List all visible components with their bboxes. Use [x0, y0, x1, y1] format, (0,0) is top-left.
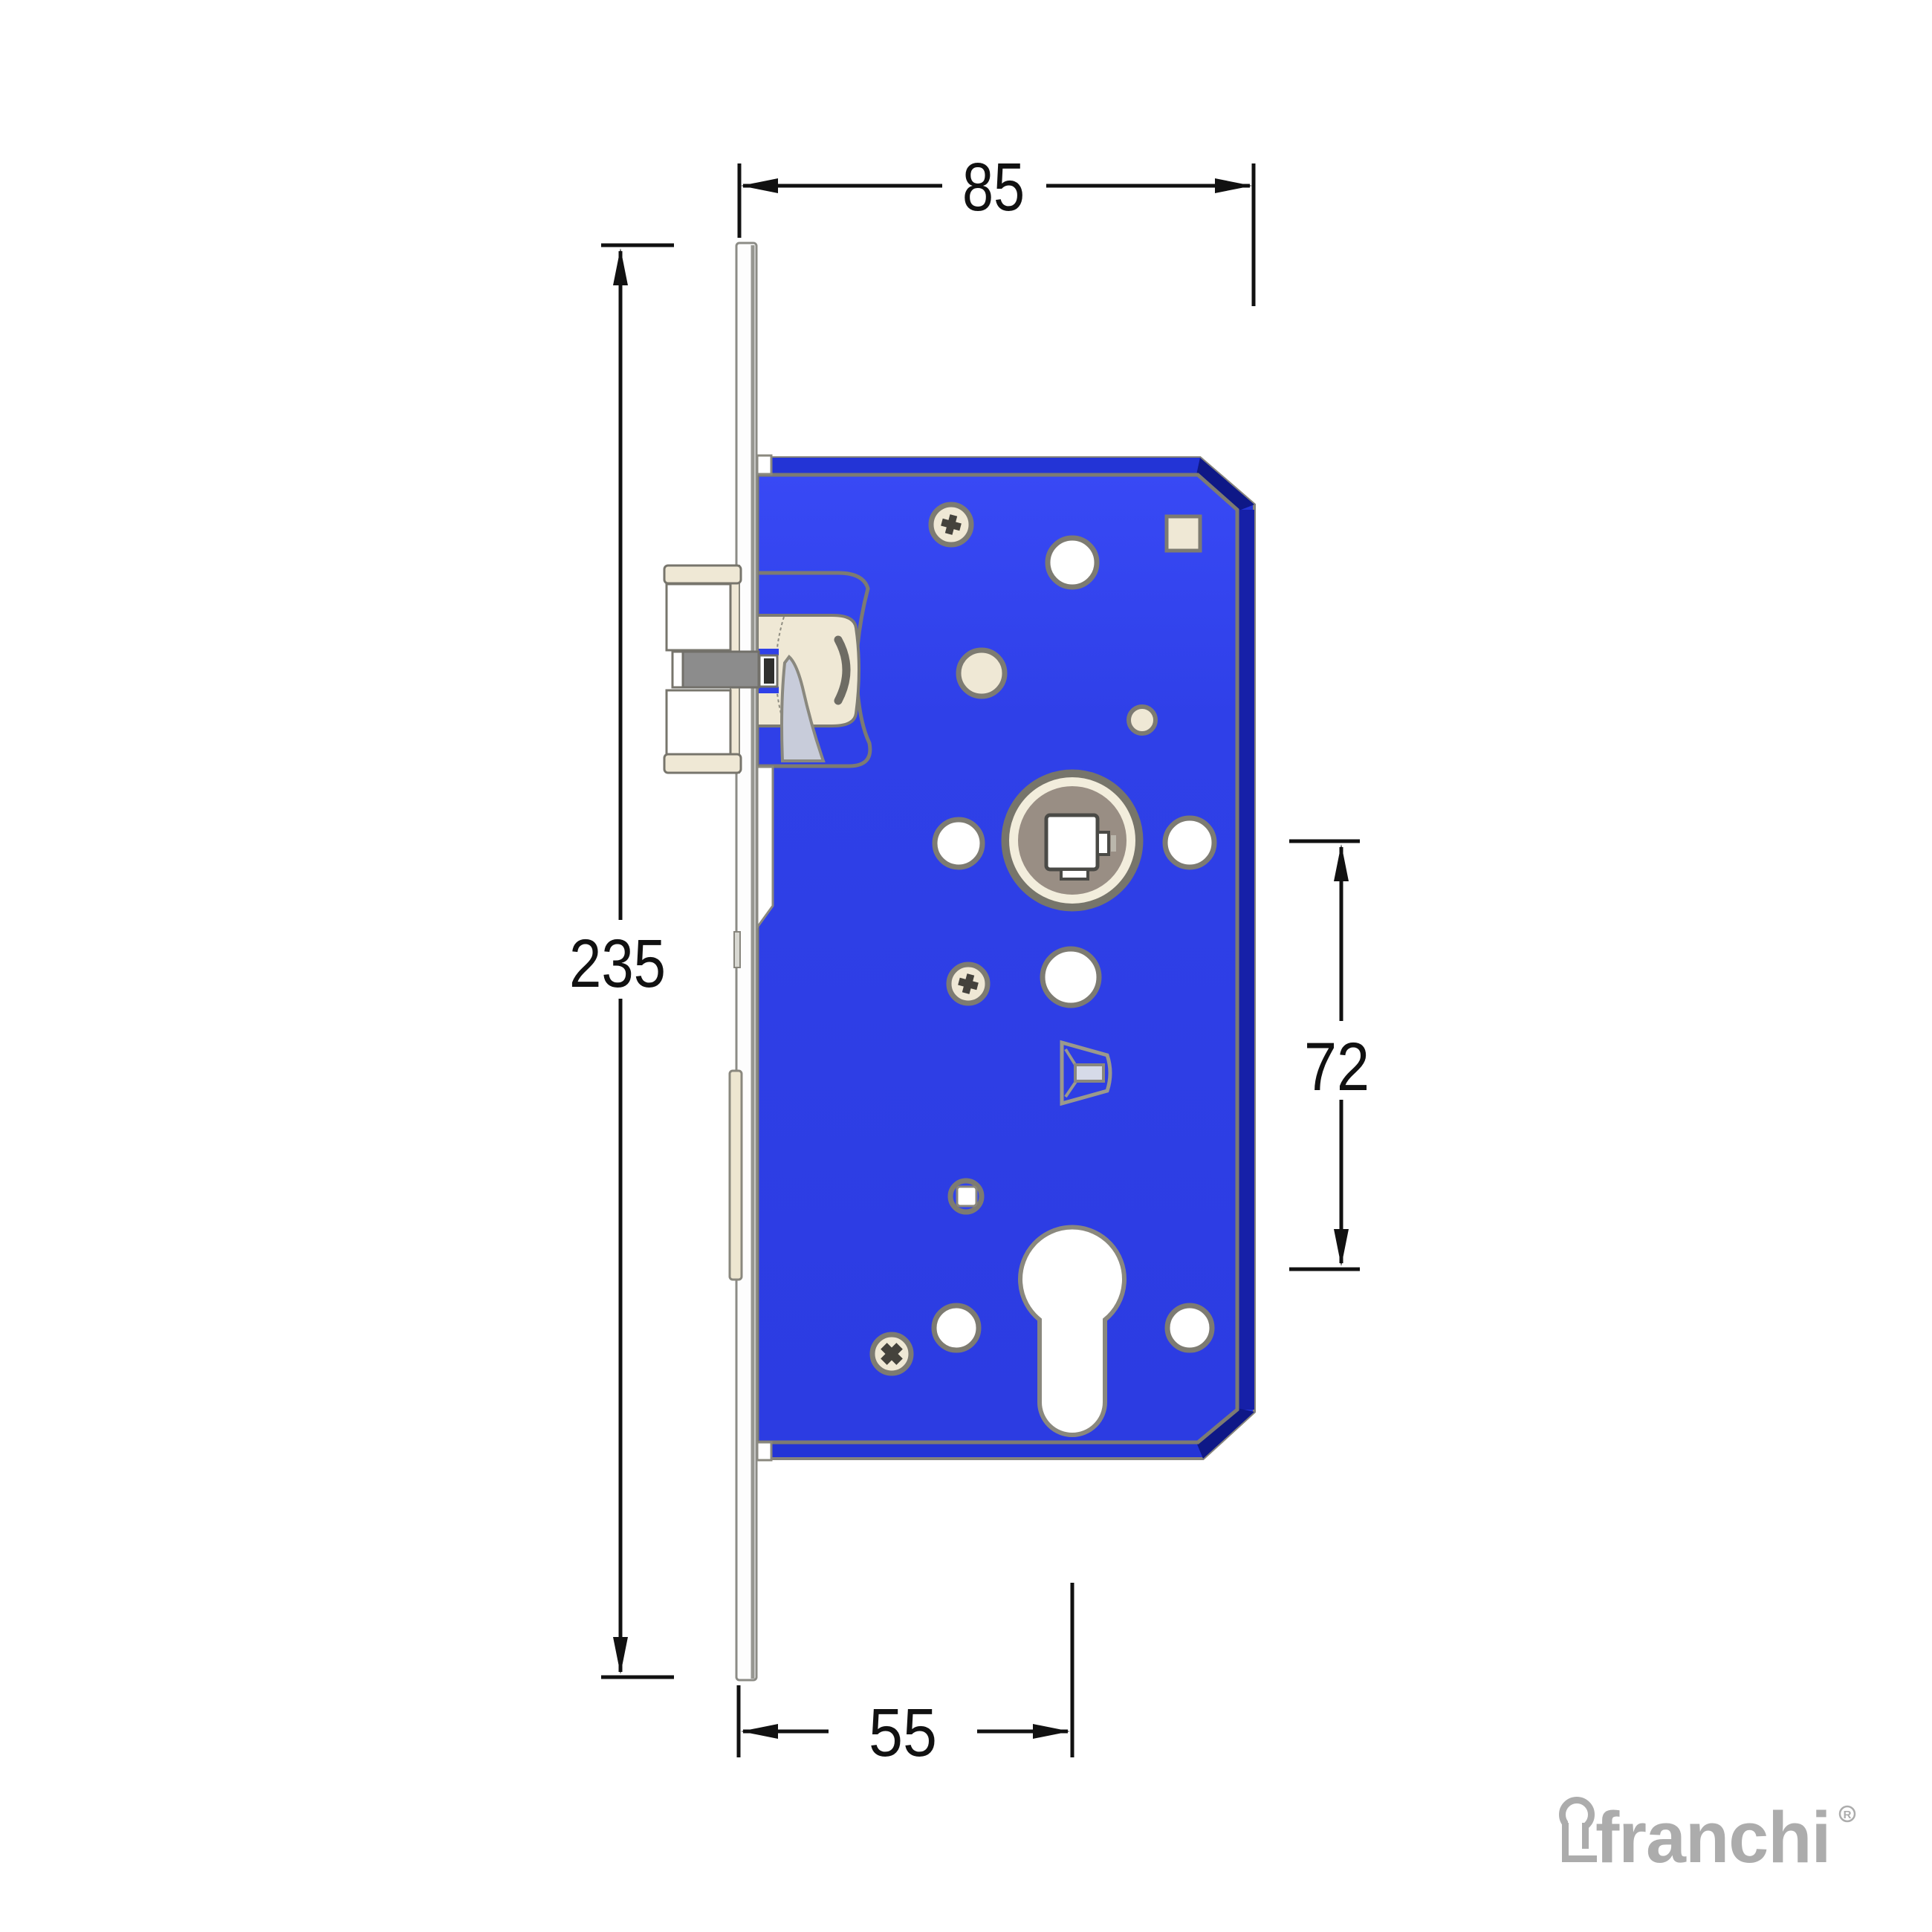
svg-text:85: 85	[962, 149, 1025, 225]
svg-text:235: 235	[569, 926, 666, 1002]
svg-text:72: 72	[1304, 1029, 1369, 1105]
svg-text:R: R	[1844, 1809, 1852, 1821]
svg-text:55: 55	[869, 1695, 937, 1771]
svg-text:franchi: franchi	[1595, 1797, 1830, 1878]
